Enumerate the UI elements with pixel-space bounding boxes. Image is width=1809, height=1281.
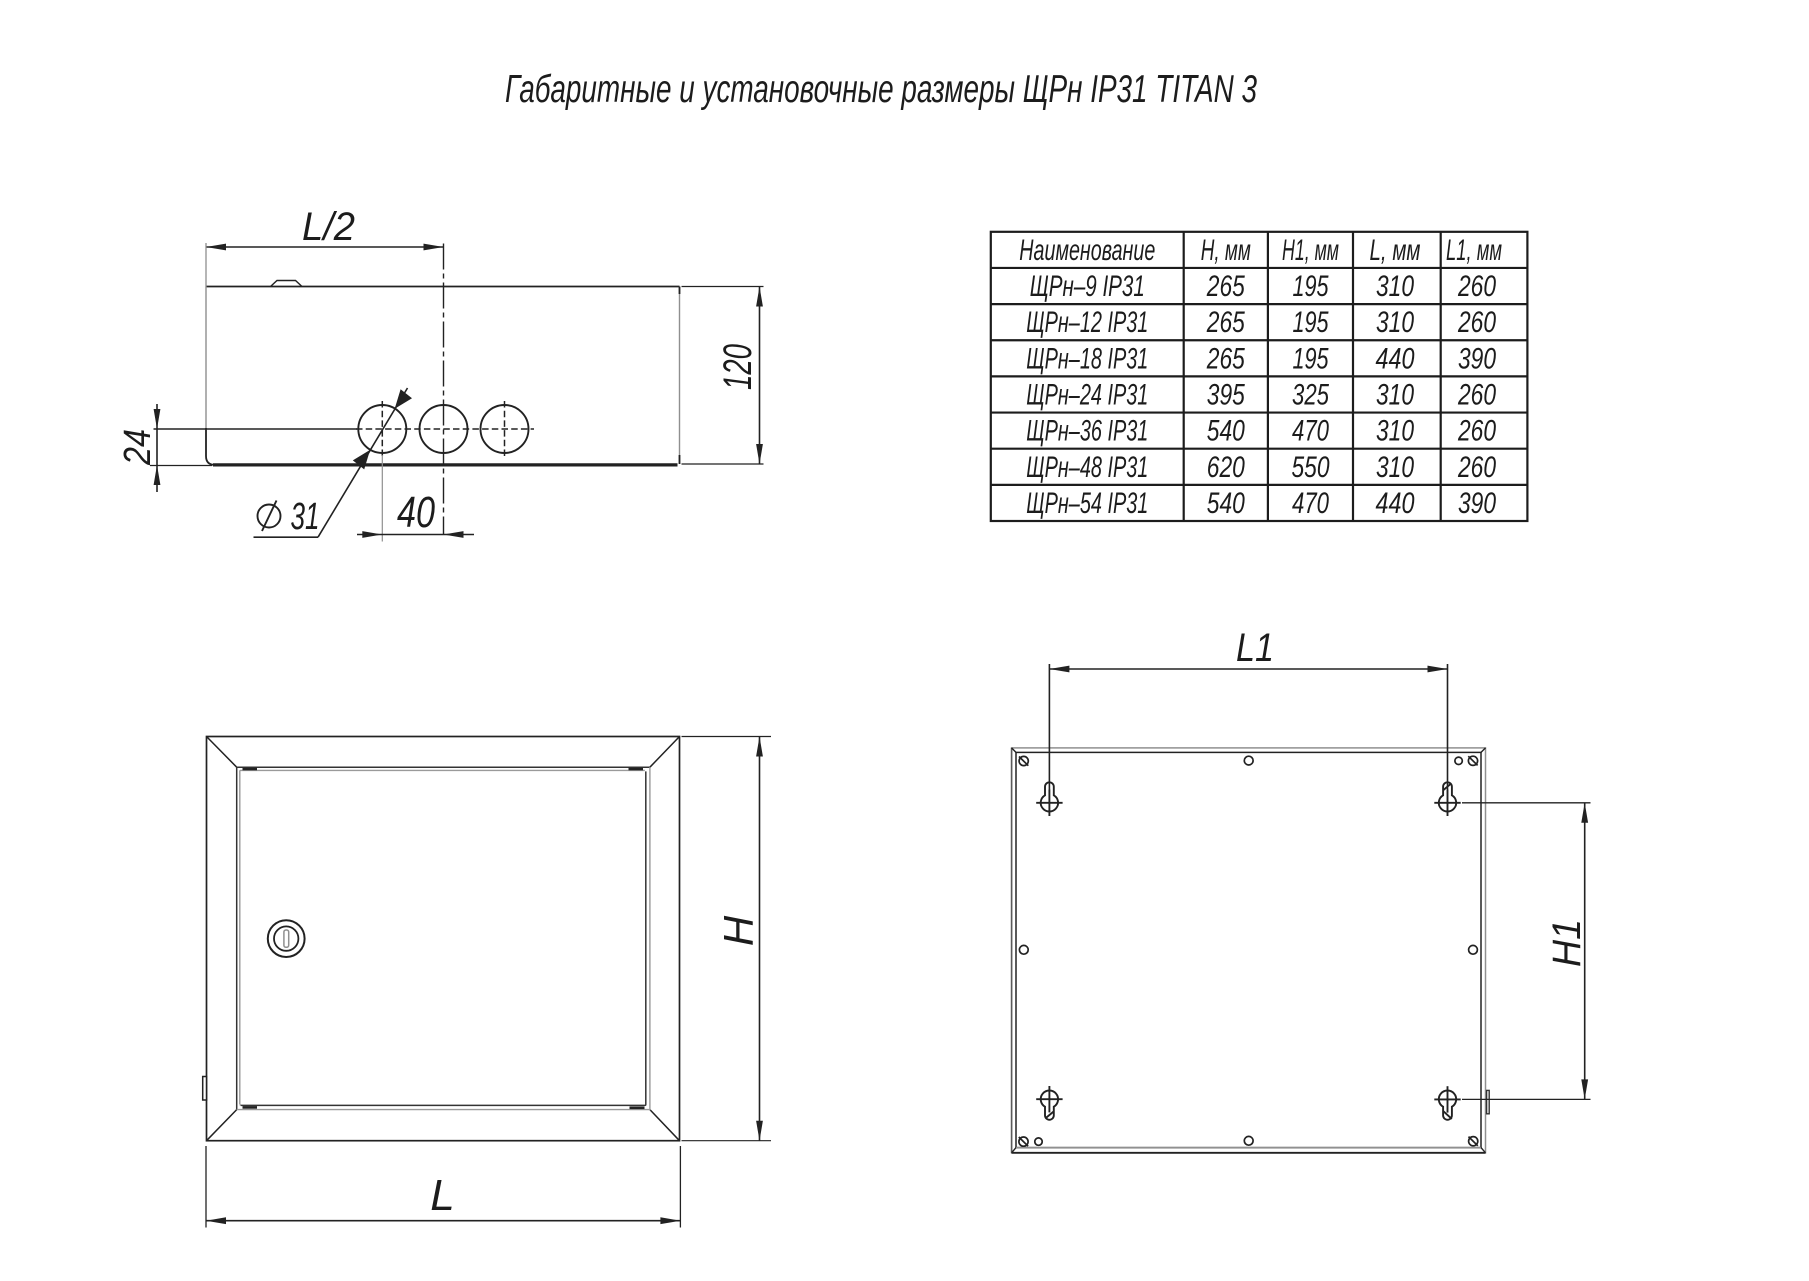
svg-text:24: 24	[117, 429, 159, 466]
svg-text:260: 260	[1457, 415, 1496, 448]
svg-text:Габаритные и установочные разм: Габаритные и установочные размеры ЩРн IP…	[505, 68, 1257, 111]
svg-text:550: 550	[1292, 451, 1330, 484]
svg-text:265: 265	[1206, 342, 1245, 375]
svg-text:620: 620	[1207, 451, 1245, 484]
svg-text:260: 260	[1457, 306, 1496, 339]
svg-text:470: 470	[1292, 487, 1329, 520]
svg-text:325: 325	[1292, 379, 1329, 412]
svg-text:H1: H1	[1545, 919, 1589, 967]
svg-text:120: 120	[716, 344, 760, 390]
svg-text:390: 390	[1458, 342, 1496, 375]
svg-text:195: 195	[1293, 270, 1329, 303]
svg-text:265: 265	[1206, 270, 1245, 303]
svg-text:H: H	[715, 915, 762, 946]
svg-text:Н, мм: Н, мм	[1201, 234, 1251, 267]
svg-text:440: 440	[1376, 342, 1415, 375]
svg-text:195: 195	[1293, 306, 1329, 339]
svg-text:310: 310	[1376, 379, 1414, 412]
svg-text:390: 390	[1458, 487, 1496, 520]
svg-text:L: L	[430, 1171, 454, 1220]
svg-text:265: 265	[1206, 306, 1245, 339]
svg-text:440: 440	[1376, 487, 1415, 520]
svg-text:L1, мм: L1, мм	[1446, 234, 1502, 267]
svg-text:540: 540	[1207, 415, 1245, 448]
svg-text:Наименование: Наименование	[1019, 234, 1155, 267]
svg-text:310: 310	[1376, 270, 1414, 303]
svg-text:ЩРн–9 IP31: ЩРн–9 IP31	[1030, 270, 1145, 303]
svg-text:L1: L1	[1236, 626, 1274, 670]
svg-text:260: 260	[1457, 270, 1496, 303]
svg-text:ЩРн–18 IP31: ЩРн–18 IP31	[1026, 342, 1148, 375]
svg-text:470: 470	[1292, 415, 1329, 448]
svg-text:40: 40	[397, 488, 435, 537]
svg-text:395: 395	[1207, 379, 1245, 412]
svg-text:L, мм: L, мм	[1370, 234, 1421, 267]
svg-text:31: 31	[291, 496, 320, 538]
svg-text:540: 540	[1207, 487, 1245, 520]
svg-text:ЩРн–12 IP31: ЩРн–12 IP31	[1026, 306, 1148, 339]
svg-text:ЩРн–36 IP31: ЩРн–36 IP31	[1026, 415, 1148, 448]
svg-text:260: 260	[1457, 379, 1496, 412]
svg-text:ЩРн–48 IP31: ЩРн–48 IP31	[1026, 451, 1148, 484]
svg-text:ЩРн–24 IP31: ЩРн–24 IP31	[1026, 379, 1148, 412]
svg-text:310: 310	[1376, 451, 1414, 484]
svg-text:310: 310	[1376, 415, 1414, 448]
svg-text:L/2: L/2	[302, 205, 355, 249]
svg-text:260: 260	[1457, 451, 1496, 484]
svg-text:ЩРн–54 IP31: ЩРн–54 IP31	[1026, 487, 1148, 520]
svg-text:195: 195	[1293, 342, 1329, 375]
svg-text:310: 310	[1376, 306, 1414, 339]
svg-text:Н1, мм: Н1, мм	[1282, 234, 1339, 267]
